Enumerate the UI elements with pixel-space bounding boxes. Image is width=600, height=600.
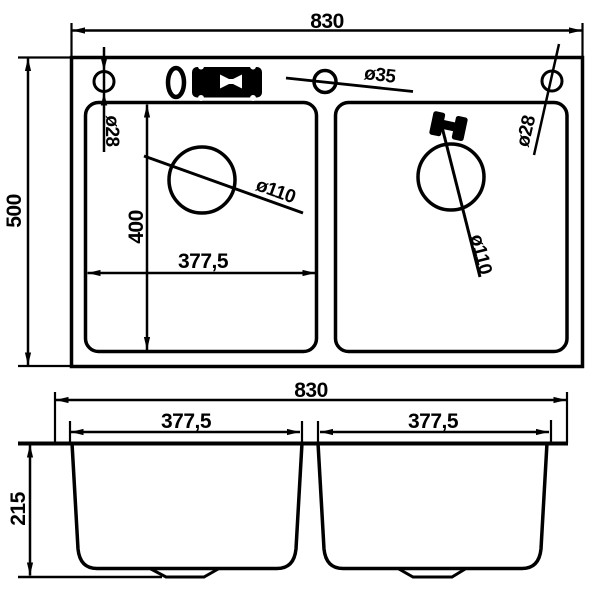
arrowhead — [101, 58, 107, 71]
dim-label-500: 500 — [3, 194, 26, 228]
arrowhead — [101, 93, 107, 106]
faucet-notch — [250, 64, 256, 70]
dim-bowl-height: 215 — [7, 445, 30, 576]
dim-label-right-drain: ø110 — [465, 232, 495, 276]
top-view: 830 500 ø28 — [3, 10, 583, 367]
leader-line — [534, 44, 559, 155]
dim-label-400: 400 — [125, 210, 148, 244]
right-hole-group: ø28 — [513, 44, 562, 155]
dim-label-3775-right: 377,5 — [408, 410, 459, 433]
left-drain-circle — [169, 147, 235, 213]
dim-bowl-width: 377,5 — [88, 250, 316, 273]
drawing-canvas: 830 500 ø28 — [0, 0, 600, 600]
faucet-notch — [250, 95, 256, 101]
dim-label-830-front: 830 — [294, 379, 328, 402]
dim-label-3775-top: 377,5 — [178, 250, 229, 273]
dim-right-bowl-width: 377,5 — [318, 410, 551, 443]
right-drain-group: ø110 — [418, 111, 496, 277]
dim-label-3775-left: 377,5 — [161, 410, 212, 433]
dim-bowl-depth: 400 — [125, 105, 148, 351]
faucet-base-icon — [168, 68, 184, 97]
left-hole-group: ø28 — [94, 47, 122, 152]
right-drain-circle — [418, 144, 484, 210]
sink-technical-drawing: 830 500 ø28 — [0, 0, 600, 600]
left-bowl-profile — [72, 443, 302, 569]
dim-label-215: 215 — [7, 491, 30, 525]
faucet-notch — [198, 64, 204, 70]
dim-overall-width: 830 — [72, 10, 583, 57]
dim-label-center-hole: ø35 — [363, 63, 397, 88]
dim-label-830-top: 830 — [310, 10, 344, 33]
center-hole-group: ø35 — [286, 63, 413, 92]
faucet-notch — [198, 95, 204, 101]
front-view: 830 377,5 377,5 215 — [7, 379, 568, 577]
dim-overall-depth: 500 — [3, 58, 70, 367]
faucet-top-icon — [168, 64, 262, 102]
dim-overall-width-front: 830 — [55, 379, 567, 443]
handle-top-icon — [429, 111, 468, 142]
dim-label-left-hole: ø28 — [101, 115, 122, 146]
left-drain-group: ø110 — [144, 147, 303, 213]
dim-left-bowl-width: 377,5 — [70, 410, 302, 443]
right-bowl-profile — [318, 443, 547, 569]
